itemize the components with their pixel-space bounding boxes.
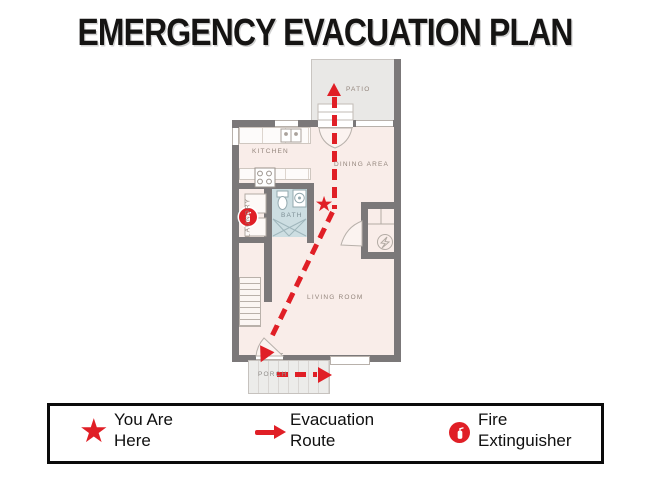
legend-line: You Are: [114, 410, 173, 431]
room-label-porch: PORCH: [258, 371, 287, 378]
legend-label-fire-extinguisher: Fire Extinguisher: [478, 410, 572, 451]
utility-closet: [368, 209, 394, 250]
closet-door-swing: [341, 221, 362, 246]
evacuation-plan-poster: EMERGENCY EVACUATION PLAN: [0, 0, 650, 488]
route-arrow-up-icon: [327, 83, 341, 96]
legend-line: Evacuation: [290, 410, 374, 431]
room-label-living: LIVING ROOM: [307, 294, 364, 301]
room-label-laundry: LAUNDRY: [245, 193, 252, 243]
arrow-icon: [255, 430, 276, 435]
legend-line: Here: [114, 431, 173, 452]
legend-line: Route: [290, 431, 374, 452]
legend-label-you-are-here: You Are Here: [114, 410, 173, 451]
star-icon: ★: [79, 414, 109, 447]
room-label-patio: PATIO: [346, 86, 371, 93]
kitchen-sink-icon: [281, 129, 301, 142]
water-heater-bolt-icon: [381, 237, 389, 248]
legend: ★ You Are Here Evacuation Route Fire Ext…: [47, 403, 604, 464]
room-label-kitchen: KITCHEN: [252, 148, 289, 155]
legend-label-evacuation-route: Evacuation Route: [290, 410, 374, 451]
bath-door-swing: [273, 219, 306, 236]
room-label-bath: BATH: [281, 212, 303, 219]
route-arrowhead-right-icon: [318, 367, 332, 383]
arrow-icon-head: [274, 425, 286, 439]
toilet-icon: [277, 191, 288, 210]
extinguisher-glyph: [453, 426, 467, 440]
you-are-here-star-icon: ★: [311, 194, 337, 215]
bath-sink-icon: [293, 190, 306, 207]
room-label-dining: DINING AREA: [334, 161, 389, 168]
stove-icon: [255, 168, 275, 187]
legend-line: Fire: [478, 410, 572, 431]
fire-extinguisher-icon: [449, 422, 470, 443]
floor-plan: PATIO KITCHEN DINING AREA BATH LAUNDRY L…: [0, 0, 650, 400]
legend-line: Extinguisher: [478, 431, 572, 452]
fixtures-layer: [232, 59, 401, 397]
